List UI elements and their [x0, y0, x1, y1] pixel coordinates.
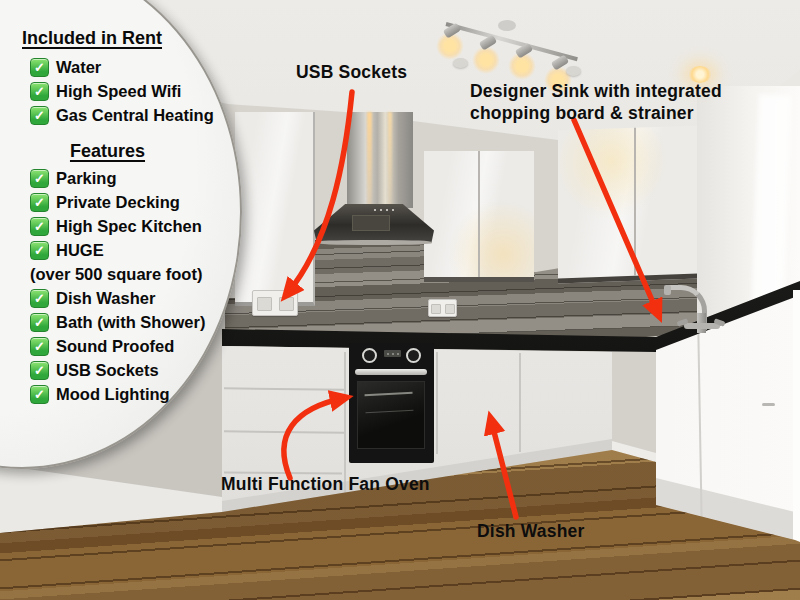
features-title: Features	[20, 141, 195, 162]
check-icon: ✓	[30, 361, 49, 380]
checklist-item: ✓Mood Lighting	[20, 384, 232, 404]
check-icon: ✓	[30, 193, 49, 212]
check-icon: ✓	[30, 106, 49, 125]
fan-oven-label: Multi Function Fan Oven	[221, 474, 430, 495]
check-icon: ✓	[30, 217, 49, 236]
checklist-item-label: Bath (with Shower)	[56, 312, 205, 332]
check-icon: ✓	[30, 313, 49, 332]
check-icon: ✓	[30, 337, 49, 356]
checklist-item-note: (over 500 square foot)	[20, 264, 232, 284]
check-icon: ✓	[30, 169, 49, 188]
usb-sockets-label: USB Sockets	[296, 62, 407, 83]
check-icon: ✓	[30, 82, 49, 101]
checklist-item: ✓Bath (with Shower)	[20, 312, 232, 332]
dish-washer-label: Dish Washer	[477, 521, 585, 542]
designer-sink-label: Designer Sink with integrated chopping b…	[470, 80, 722, 124]
checklist-item-label: Parking	[56, 168, 117, 188]
checklist-item: ✓Gas Central Heating	[20, 105, 232, 125]
checklist-item: ✓Parking	[20, 168, 232, 188]
check-icon: ✓	[30, 289, 49, 308]
checklist-item: ✓Sound Proofed	[20, 336, 232, 356]
checklist-item: ✓HUGE	[20, 240, 232, 260]
checklist-item-label: Water	[56, 57, 101, 77]
checklist-item-label: HUGE	[56, 240, 104, 260]
checklist-item-label: Sound Proofed	[56, 336, 174, 356]
checklist-item-label: High Speed Wifi	[56, 81, 181, 101]
checklist-item-label: Dish Washer	[56, 288, 155, 308]
check-icon: ✓	[30, 241, 49, 260]
dish-washer-arrow	[491, 420, 516, 517]
info-panel-content: Included in Rent ✓Water✓High Speed Wifi✓…	[20, 28, 232, 408]
checklist-item: ✓Private Decking	[20, 192, 232, 212]
included-in-rent-list: ✓Water✓High Speed Wifi✓Gas Central Heati…	[20, 57, 232, 125]
designer-sink-arrow	[574, 120, 658, 314]
designer-sink-label-line1: Designer Sink with integrated	[470, 80, 722, 102]
kitchen-photo: USB Sockets Designer Sink with integrate…	[0, 0, 800, 600]
fan-oven-arrow	[284, 398, 344, 478]
check-icon: ✓	[30, 385, 49, 404]
checklist-item-label: USB Sockets	[56, 360, 159, 380]
checklist-item-label: Mood Lighting	[56, 384, 170, 404]
checklist-item: ✓USB Sockets	[20, 360, 232, 380]
designer-sink-label-line2: chopping board & strainer	[470, 102, 722, 124]
checklist-item: ✓High Spec Kitchen	[20, 216, 232, 236]
checklist-item-label: Gas Central Heating	[56, 105, 214, 125]
included-in-rent-title: Included in Rent	[22, 28, 232, 49]
usb-sockets-arrow	[287, 92, 352, 294]
checklist-item: ✓Dish Washer	[20, 288, 232, 308]
checklist-item: ✓Water	[20, 57, 232, 77]
checklist-item-label: Private Decking	[56, 192, 180, 212]
checklist-item-label: High Spec Kitchen	[56, 216, 202, 236]
check-icon: ✓	[30, 58, 49, 77]
features-list: ✓Parking✓Private Decking✓High Spec Kitch…	[20, 168, 232, 404]
checklist-item: ✓High Speed Wifi	[20, 81, 232, 101]
